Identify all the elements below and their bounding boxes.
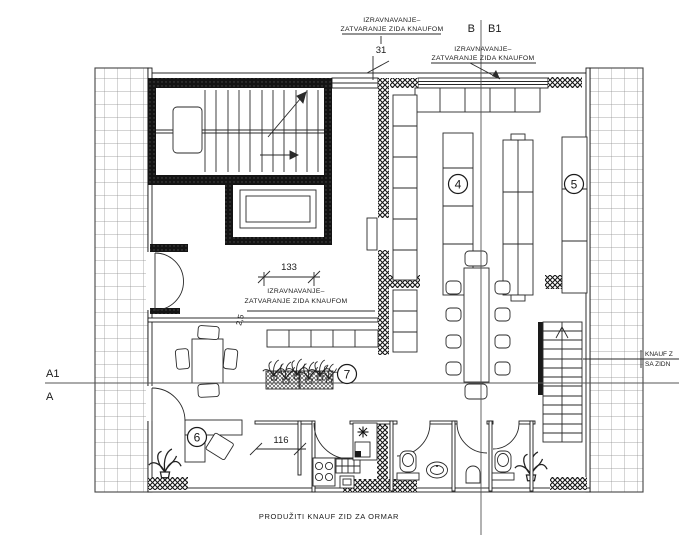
terrace-left [95,68,148,492]
section-label-b: B [468,23,475,35]
note-line: ZATVARANJE ZIDA KNAUFOM [341,26,444,33]
kitchen-door [314,423,350,459]
central-knauf-wall [378,78,389,218]
section-label-a1: A1 [46,368,59,380]
note-line: ZATVARANJE ZIDA KNAUFOM [245,298,348,305]
floor-plan-page: A1 A B B1 IZRAVNAVANJE– ZATVARANJE ZIDA … [0,0,679,535]
terrace-right [590,68,643,492]
bottom-note: PRODUŽITI KNAUF ZID ZA ORMAR [259,512,399,521]
double-door-opening [146,252,154,310]
floor-plan-drawing: A1 A B B1 IZRAVNAVANJE– ZATVARANJE ZIDA … [0,0,679,535]
cabinet-row-low [267,330,378,347]
room-number: 5 [571,178,578,192]
room-number: 7 [344,368,351,382]
bathroom-door [397,423,430,456]
dining-table [192,339,223,383]
toilet [492,451,514,480]
bathroom-fixtures [397,451,514,483]
section-label-b1: B1 [488,23,501,35]
dimension-133: 133 [258,262,320,286]
entry-door [152,388,185,421]
room-number-6: 6 [188,428,207,447]
bath-block [225,185,332,245]
service-doors [314,423,519,459]
appliance-icon [358,427,369,438]
window-wall [418,78,548,88]
dimension-value: 116 [273,435,288,446]
stair-direction-arrow [260,92,306,159]
room-number: 4 [455,178,462,192]
room-number: 6 [194,431,201,445]
desk-unit-5 [562,137,587,293]
note-line: IZRAVNAVANJE– [363,17,421,24]
knauf-note-top-right: IZRAVNAVANJE– ZATVARANJE ZIDA KNAUFOM [431,46,536,79]
sink-drainer [336,459,360,473]
wall-cabinet-column [393,95,417,352]
dimension-31: 31 [376,45,387,56]
note-line: IZRAVNAVANJE– [454,46,512,53]
knauf-note-top-left: IZRAVNAVANJE– ZATVARANJE ZIDA KNAUFOM 31 [341,17,444,80]
note-line: SA ZIDN [645,361,671,368]
dimension-wall-thickness: 2,5 [234,313,246,327]
office-chair [205,433,234,461]
note-line: IZRAVNAVANJE– [267,288,325,295]
chair [465,251,487,266]
boiler-closet [353,423,377,460]
right-staircase [538,322,582,442]
dining-set [175,325,238,397]
bathroom-door [493,423,519,449]
dimension-value: 133 [281,262,297,273]
bidet [466,466,480,483]
room-number-4: 4 [449,175,468,194]
toilet [397,451,419,480]
conference-table [464,268,489,382]
door-leaf [367,218,377,250]
entry-door-opening [146,386,154,421]
planter-row [263,359,340,389]
double-door [150,244,188,314]
knauf-note-middle: IZRAVNAVANJE– ZATVARANJE ZIDA KNAUFOM [245,288,375,311]
note-line: ZATVARANJE ZIDA KNAUFOM [432,55,535,62]
stairwell [148,78,332,185]
note-line: KNAUF Z [645,351,673,358]
room-number-7: 7 [338,365,357,384]
bathroom-door [457,423,487,453]
section-label-a: A [46,391,54,403]
washbasin [427,462,448,478]
chair [465,384,487,399]
stove [313,458,335,486]
desk-unit-middle [503,134,533,301]
top-cabinet-row [415,88,540,112]
stair-landing-rail [173,107,202,153]
room-number-5: 5 [565,175,584,194]
